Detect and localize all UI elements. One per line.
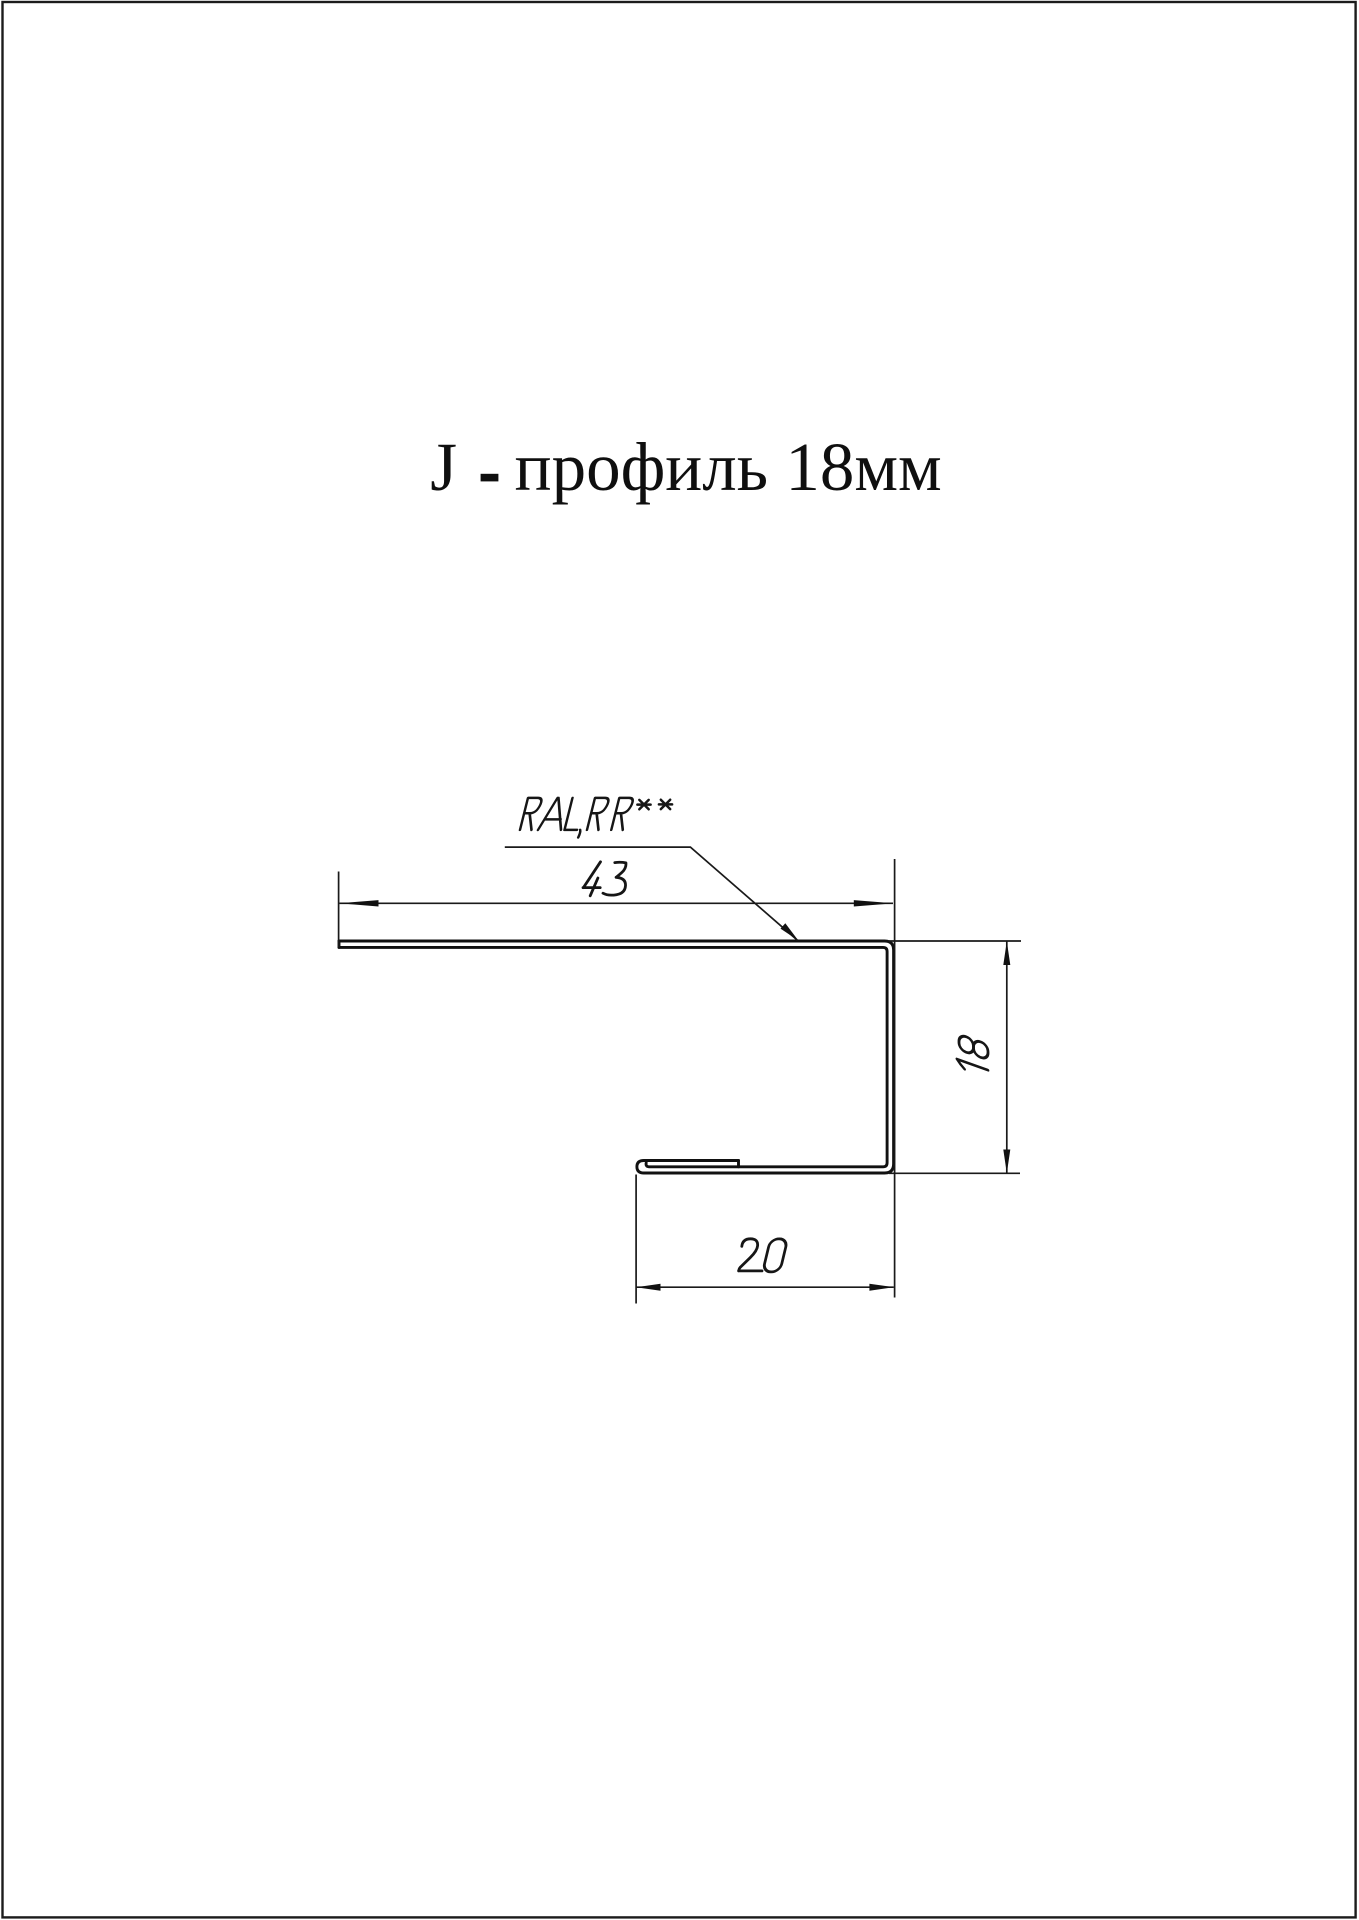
svg-text:J - профиль 18мм: J - профиль 18мм xyxy=(430,429,941,505)
